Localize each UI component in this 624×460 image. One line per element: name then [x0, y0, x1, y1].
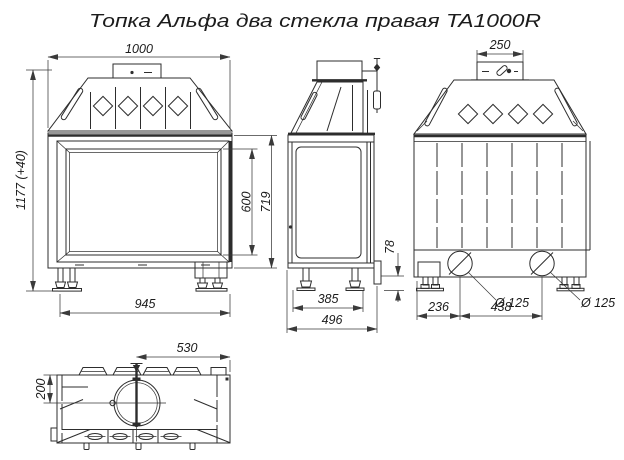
front-view: 1000 1177 (+40) 600 719 945 — [14, 42, 277, 317]
top-vent-slots — [85, 430, 182, 443]
dim-flue-collar: 250 — [477, 38, 523, 62]
dim-height-overall-label: 1177 (+40) — [14, 150, 28, 210]
dim-front-to-flue-label: 200 — [34, 379, 48, 401]
dim-width-top-label: 1000 — [125, 42, 153, 56]
dim-height-overall: 1177 (+40) — [14, 70, 58, 291]
top-view: 530 200 — [34, 341, 230, 450]
side-glass — [296, 147, 361, 258]
dim-base-gap-label: 78 — [383, 240, 397, 254]
rear-body — [414, 134, 590, 277]
front-hood — [48, 78, 232, 131]
dim-glass-height-label: 600 — [240, 192, 254, 213]
technical-drawing: Топка Альфа два стекла правая TA1000R — [0, 0, 624, 460]
dim-depth-feet-label: 385 — [318, 292, 339, 306]
dim-firebox-height-label: 719 — [259, 192, 273, 213]
dim-front-to-flue: 200 — [34, 375, 113, 403]
side-rear-bracket — [374, 261, 381, 284]
dim-air-left-offset-label: 236 — [427, 300, 449, 314]
dim-air-spacing: 438 — [460, 300, 542, 316]
top-side-bracket — [51, 428, 57, 441]
dim-center-to-edge-label: 530 — [177, 341, 198, 355]
page-title: Топка Альфа два стекла правая TA1000R — [89, 11, 541, 31]
side-handle-dot — [289, 225, 292, 228]
rear-flue-collar — [471, 62, 529, 81]
front-base-legs — [53, 262, 228, 291]
dim-air-spacing-label: 438 — [491, 300, 512, 314]
damper-lever — [496, 65, 508, 77]
rear-hood — [414, 80, 586, 134]
dim-flue-collar-label: 250 — [489, 38, 511, 52]
dim-width-bottom: 945 — [60, 294, 230, 317]
side-legs — [297, 268, 364, 291]
dim-glass-height: 600 — [223, 149, 258, 255]
side-hood — [288, 82, 375, 134]
rear-junction-box — [418, 262, 440, 277]
top-feet — [84, 443, 195, 450]
side-chimney-connector — [312, 61, 367, 80]
front-glass — [66, 149, 221, 255]
side-view: 385 496 78 — [287, 59, 404, 334]
rear-view: 250 Ø 125 Ø 125 236 438 — [414, 38, 615, 320]
front-body — [48, 133, 232, 268]
dim-width-bottom-label: 945 — [135, 297, 156, 311]
side-damper-lever — [362, 59, 381, 114]
technical-drawing-page: Топка Альфа два стекла правая TA1000R — [0, 0, 624, 460]
air-inlet-right-label: Ø 125 — [580, 296, 615, 310]
dim-base-gap: 78 — [381, 240, 404, 302]
side-body — [288, 135, 381, 284]
dim-depth-overall-label: 496 — [322, 313, 343, 327]
rear-legs — [417, 277, 585, 291]
dim-depth-feet: 385 — [293, 290, 363, 312]
